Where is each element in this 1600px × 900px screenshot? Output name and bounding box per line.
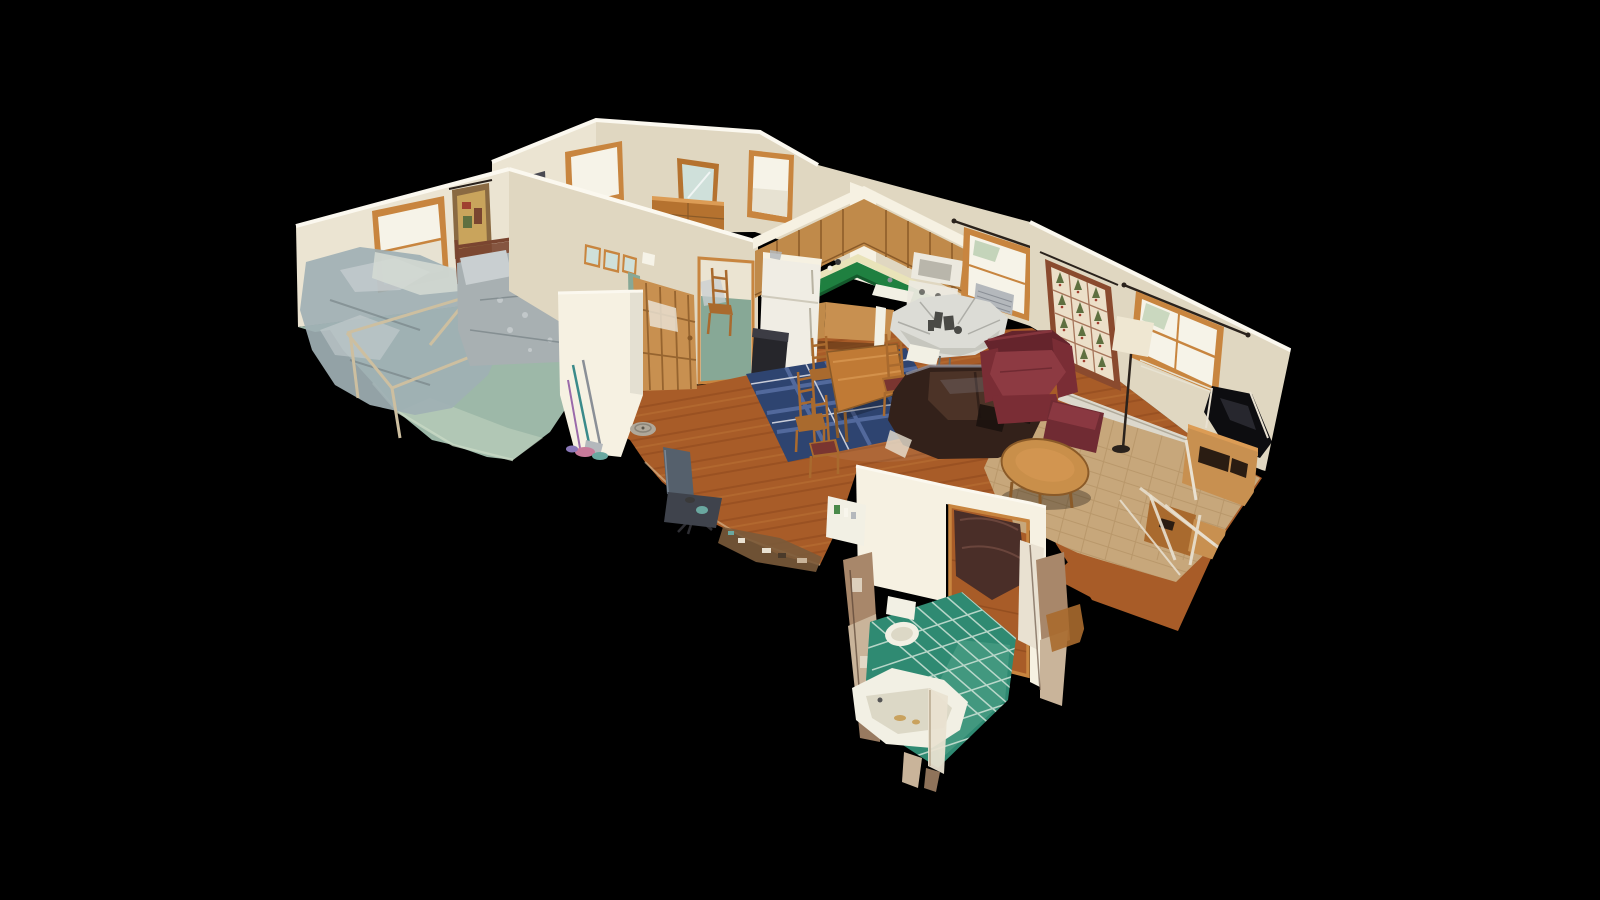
paper-towel-holder — [874, 306, 886, 350]
counter-item — [835, 259, 841, 265]
lamp-shade — [1112, 316, 1154, 357]
chair-seat — [664, 492, 722, 528]
bedroom2-doorway — [699, 258, 753, 383]
dollhouse-scene — [0, 0, 1600, 900]
dollhouse-3d-viewport[interactable] — [0, 0, 1600, 900]
door-knob — [688, 336, 693, 341]
counter-item — [828, 266, 833, 271]
robot-vacuum — [630, 422, 656, 436]
bedroom2-window-right — [747, 150, 794, 224]
